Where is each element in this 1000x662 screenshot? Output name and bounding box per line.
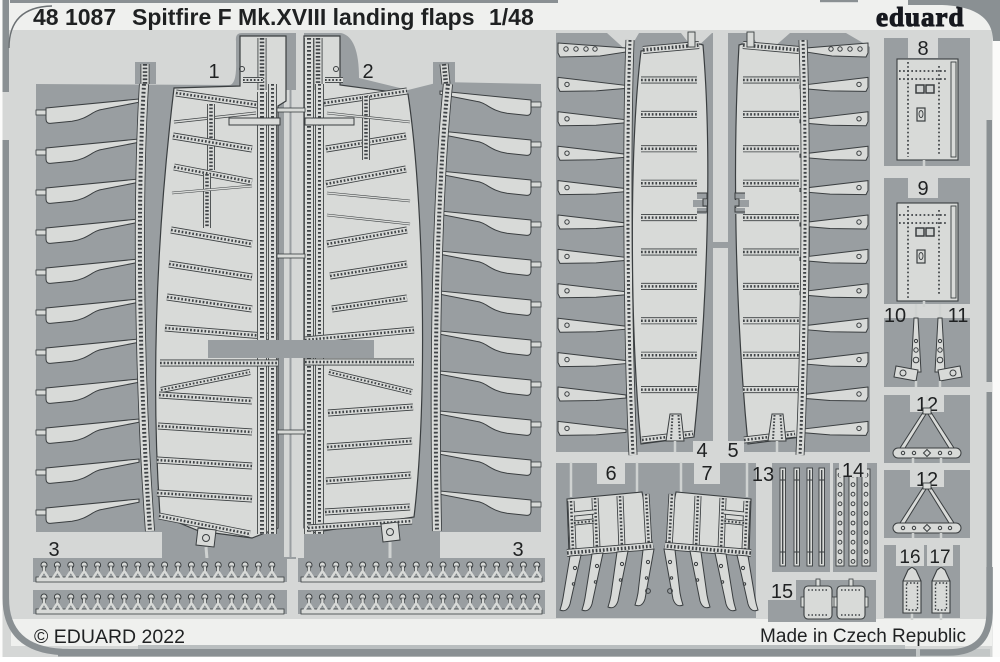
svg-text:5: 5 [727,440,738,462]
svg-text:8: 8 [917,38,928,60]
svg-text:4: 4 [696,440,707,462]
svg-text:eduard: eduard [876,2,964,32]
svg-text:48 1087: 48 1087 [33,4,116,30]
svg-text:© EDUARD 2022: © EDUARD 2022 [34,626,185,648]
svg-text:15: 15 [771,581,793,603]
svg-text:10: 10 [884,305,906,327]
svg-text:11: 11 [948,305,969,327]
svg-text:3: 3 [512,539,523,561]
svg-text:7: 7 [701,463,712,485]
svg-text:Made in Czech Republic: Made in Czech Republic [760,626,966,647]
svg-text:1/48: 1/48 [489,4,534,30]
svg-text:16: 16 [899,547,920,568]
svg-text:1: 1 [208,61,219,83]
svg-text:14: 14 [842,460,864,482]
svg-text:6: 6 [605,463,616,485]
svg-text:13: 13 [752,464,774,486]
svg-text:3: 3 [48,539,59,561]
svg-text:9: 9 [917,178,928,200]
svg-text:2: 2 [362,61,373,83]
svg-text:Spitfire F Mk.XVIII landing fl: Spitfire F Mk.XVIII landing flaps [132,4,474,30]
